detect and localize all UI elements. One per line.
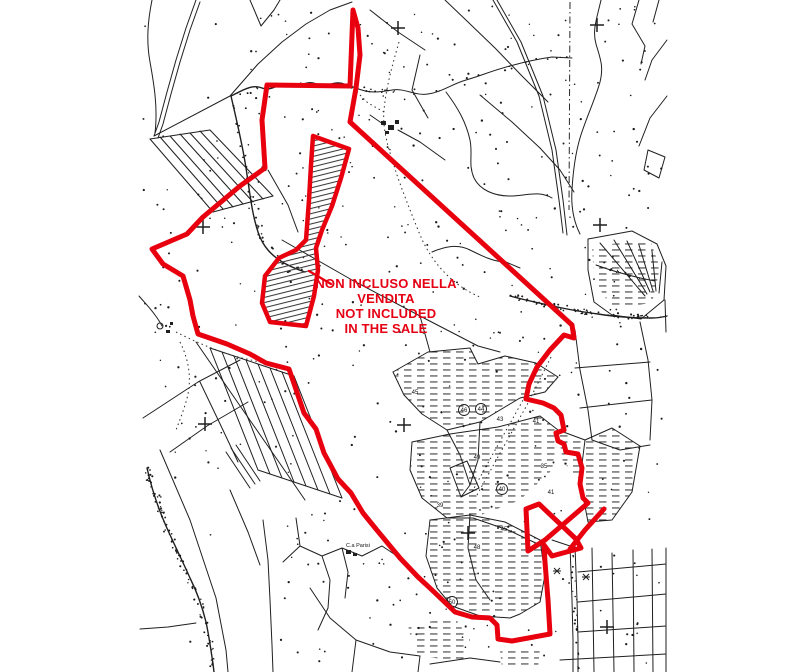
parcel-number: 44: [478, 407, 485, 413]
grid-cross-icon: [397, 418, 411, 432]
farm-building-icon: [346, 550, 357, 556]
parcel-boundaries: [140, 0, 667, 672]
parcel-number: 45: [501, 527, 508, 533]
annotation-line: VENDITA: [303, 291, 469, 306]
tree-icon: [582, 574, 590, 580]
grid-cross-icon: [391, 21, 405, 35]
cadastral-map: C.a Parisi 45464443414935404139454850 NO…: [0, 0, 800, 672]
grid-cross-icon: [600, 620, 614, 634]
parcel-number: 40: [499, 487, 506, 493]
tree-icon: [553, 568, 561, 574]
parcel-number: 43: [497, 417, 504, 423]
farm-label: C.a Parisi: [346, 543, 370, 549]
parcel-number: 39: [437, 503, 444, 509]
parcel-number: 41: [548, 490, 555, 496]
parcel-number: 35: [541, 464, 548, 470]
grid-cross-icon: [590, 18, 604, 32]
parcel-number: 41: [533, 419, 540, 425]
parcel-number: 48: [474, 545, 481, 551]
annotation-line: NOT INCLUDED: [303, 306, 469, 321]
grid-cross-icon: [198, 417, 212, 431]
parcel-number: 49: [474, 455, 481, 461]
exclusion-annotation: NON INCLUSO NELLA VENDITA NOT INCLUDED I…: [303, 276, 469, 336]
stipple-dots: [143, 5, 663, 669]
parcel-number: 45: [412, 390, 419, 396]
grid-cross-icon: [593, 218, 607, 232]
hamlet-icon: [157, 322, 173, 333]
annotation-line: NON INCLUSO NELLA: [303, 276, 469, 291]
map-canvas: C.a Parisi 45464443414935404139454850: [0, 0, 800, 672]
parcel-number: 46: [461, 408, 468, 414]
annotation-line: IN THE SALE: [303, 321, 469, 336]
